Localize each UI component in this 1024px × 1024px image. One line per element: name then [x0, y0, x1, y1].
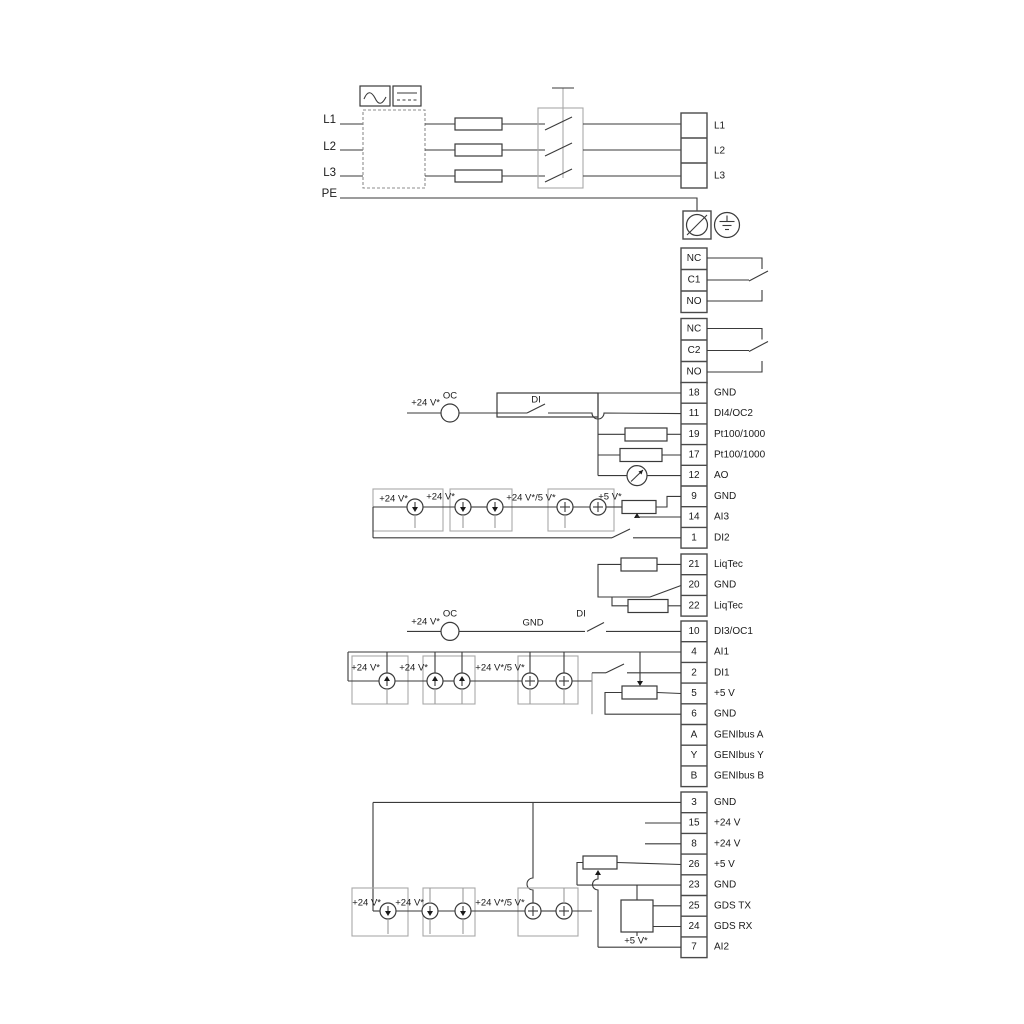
v24-label: +24 V*	[352, 898, 381, 909]
terminal-number: 9	[691, 491, 697, 502]
terminal-number: 20	[688, 580, 700, 591]
pt100-sensor-icon	[625, 428, 667, 441]
pe-screw-terminal-icon	[683, 211, 711, 239]
terminal-number: 14	[688, 512, 700, 523]
current-sink-icon	[487, 499, 503, 515]
mains-section: L1 L2 L3 PE	[322, 86, 740, 239]
terminal-label: GND	[714, 880, 736, 891]
terminal-label: GND	[714, 797, 736, 808]
terminal-label: AI2	[714, 942, 729, 953]
earth-ground-icon	[715, 213, 740, 238]
terminal-label: GDS TX	[714, 900, 751, 911]
plus-circle-icon	[590, 499, 606, 515]
mains-terminal-block: L1 L2 L3	[681, 113, 726, 188]
terminal-label: DI1	[714, 667, 730, 678]
current-source-icon	[379, 673, 395, 689]
io-strip-1: 18 GND 11 DI4/OC2 19 Pt100/1000 17 Pt100…	[681, 383, 766, 549]
terminal-number: 17	[688, 450, 700, 461]
potentiometer-icon	[583, 856, 617, 869]
terminal-number: 4	[691, 647, 697, 658]
relay2-changeover-contact-icon	[707, 329, 768, 373]
terminal-number: 10	[688, 626, 700, 637]
terminal-number: A	[691, 729, 698, 740]
di-label: DI	[576, 609, 586, 620]
current-sink-icon	[455, 499, 471, 515]
plus-circle-icon	[557, 499, 573, 515]
ai3-option-row: +24 V* +24 V* +24 V*/5 V* +5 V*	[373, 489, 681, 531]
v5-label: +5 V*	[624, 936, 648, 947]
plus-circle-icon	[556, 903, 572, 919]
liqtec-strip: 21 LiqTec 20 GND 22 LiqTec	[681, 554, 743, 616]
terminal-label: GND	[714, 388, 736, 399]
v24-label: +24 V*	[395, 898, 424, 909]
terminal-number: C2	[688, 345, 701, 356]
liqtec-sensor-icon	[621, 558, 657, 571]
terminal-label: AO	[714, 470, 729, 481]
plus-circle-icon	[525, 903, 541, 919]
terminal-number: 15	[688, 818, 700, 829]
di2-switch-icon	[612, 529, 630, 538]
fuse-l1-icon	[455, 118, 502, 130]
terminal-number: NC	[687, 324, 701, 335]
terminal-label: GND	[714, 709, 736, 720]
open-collector-icon	[441, 622, 459, 640]
terminal-number: 22	[688, 600, 700, 611]
mains-filter-box	[360, 86, 425, 188]
terminal-number: NC	[687, 253, 701, 264]
current-sink-icon	[455, 903, 471, 919]
terminal-label: +24 V	[714, 838, 741, 849]
terminal-label: GENIbus B	[714, 771, 764, 782]
potentiometer-icon	[622, 686, 657, 699]
terminal-label: GND	[714, 491, 736, 502]
terminal-number: NO	[687, 296, 702, 307]
terminal-number: 18	[688, 388, 700, 399]
terminal-number: 24	[688, 921, 700, 932]
terminal-label: LiqTec	[714, 559, 743, 570]
terminal-label: L2	[714, 146, 726, 157]
wiring-diagram-page: L1 L2 L3 PE	[0, 0, 1024, 1024]
io-strip-3: 3 GND 15 +24 V 8 +24 V 26 +5 V 23 GND 25…	[681, 792, 753, 958]
v24-label: +24 V*	[411, 398, 440, 409]
di3-switch-icon	[587, 623, 604, 632]
ai2-option-row: +24 V* +24 V* +24 V*/5 V*	[352, 888, 592, 936]
di-label: DI	[531, 395, 541, 406]
v24-label: +24 V*	[351, 663, 380, 674]
terminal-number: 8	[691, 838, 697, 849]
current-source-icon	[454, 673, 470, 689]
terminal-number: 19	[688, 429, 700, 440]
terminal-number: 7	[691, 942, 697, 953]
terminal-label: GND	[714, 580, 736, 591]
terminal-label: DI3/OC1	[714, 626, 753, 637]
terminal-number: 3	[691, 797, 697, 808]
terminal-label: DI2	[714, 532, 730, 543]
mains-label-l1: L1	[323, 114, 336, 126]
v24-5v-label: +24 V*/5 V*	[506, 493, 556, 504]
terminal-label: +24 V	[714, 818, 741, 829]
mains-label-pe: PE	[322, 188, 338, 200]
terminal-label: GENIbus A	[714, 729, 764, 740]
terminal-label: L3	[714, 171, 726, 182]
disconnect-switch	[538, 88, 583, 188]
wiring-diagram: L1 L2 L3 PE	[0, 0, 1024, 1024]
terminal-label: LiqTec	[714, 600, 743, 611]
terminal-label: GDS RX	[714, 921, 753, 932]
oc-label: OC	[443, 391, 457, 402]
liqtec-sensor-icon	[628, 600, 668, 613]
terminal-number: NO	[687, 367, 702, 378]
relay1-block: NC C1 NO	[681, 248, 768, 313]
v24-label: +24 V*	[399, 663, 428, 674]
terminal-number: 2	[691, 667, 697, 678]
fuse-l2-icon	[455, 144, 502, 156]
terminal-label: L1	[714, 121, 726, 132]
di1-switch-icon	[606, 664, 624, 673]
terminal-number: 1	[691, 532, 697, 543]
v24-5v-label: +24 V*/5 V*	[475, 663, 525, 674]
gnd-label: GND	[522, 618, 543, 629]
terminal-number: 21	[688, 559, 700, 570]
potentiometer-icon	[622, 501, 656, 514]
mains-label-l2: L2	[323, 141, 336, 153]
io-strip-2-wiring: +24 V* OC GND DI +24 V* +24 V* +24 V*/5 …	[348, 609, 681, 715]
terminal-number: C1	[688, 275, 701, 286]
current-sink-icon	[380, 903, 396, 919]
ac-symbol-icon	[360, 86, 390, 106]
dc-symbol-icon	[393, 86, 421, 106]
terminal-label: Pt100/1000	[714, 450, 766, 461]
v24-5v-label: +24 V*/5 V*	[475, 898, 525, 909]
terminal-number: Y	[691, 750, 698, 761]
terminal-label: +5 V	[714, 688, 735, 699]
current-source-icon	[427, 673, 443, 689]
current-sink-icon	[407, 499, 423, 515]
terminal-label: GENIbus Y	[714, 750, 764, 761]
terminal-number: 5	[691, 688, 697, 699]
terminal-number: 25	[688, 900, 700, 911]
relay1-changeover-contact-icon	[707, 258, 768, 301]
terminal-label: AI3	[714, 512, 729, 523]
terminal-label: AI1	[714, 647, 729, 658]
v24-label: +24 V*	[379, 494, 408, 505]
oc-label: OC	[443, 609, 457, 620]
plus-circle-icon	[556, 673, 572, 689]
ai1-option-row: +24 V* +24 V* +24 V*/5 V*	[348, 652, 640, 704]
current-sink-icon	[422, 903, 438, 919]
pt100-sensor-icon	[620, 449, 662, 462]
fuse-l3-icon	[455, 170, 502, 182]
v24-label: +24 V*	[426, 492, 455, 503]
mains-label-l3: L3	[323, 167, 336, 179]
terminal-label: +5 V	[714, 859, 735, 870]
gds-sensor-box	[621, 900, 653, 932]
plus-circle-icon	[522, 673, 538, 689]
open-collector-icon	[441, 404, 459, 422]
terminal-label: Pt100/1000	[714, 429, 766, 440]
terminal-label: DI4/OC2	[714, 408, 753, 419]
terminal-number: B	[691, 771, 698, 782]
terminal-number: 11	[689, 408, 700, 419]
ao-meter-icon	[627, 466, 647, 486]
relay2-block: NC C2 NO	[681, 319, 768, 384]
io-strip-1-wiring: +24 V* OC DI +24 V*	[373, 391, 681, 538]
io-strip-2: 10 DI3/OC1 4 AI1 2 DI1 5 +5 V 6 GND A GE…	[681, 621, 764, 787]
terminal-number: 6	[691, 709, 697, 720]
liqtec-wiring	[598, 558, 681, 613]
terminal-number: 23	[688, 880, 700, 891]
terminal-number: 12	[688, 470, 700, 481]
terminal-number: 26	[688, 859, 700, 870]
io-strip-3-wiring: +5 V* +24 V* +24 V* +24 V*/5 V*	[352, 802, 681, 947]
v24-label: +24 V*	[411, 617, 440, 628]
